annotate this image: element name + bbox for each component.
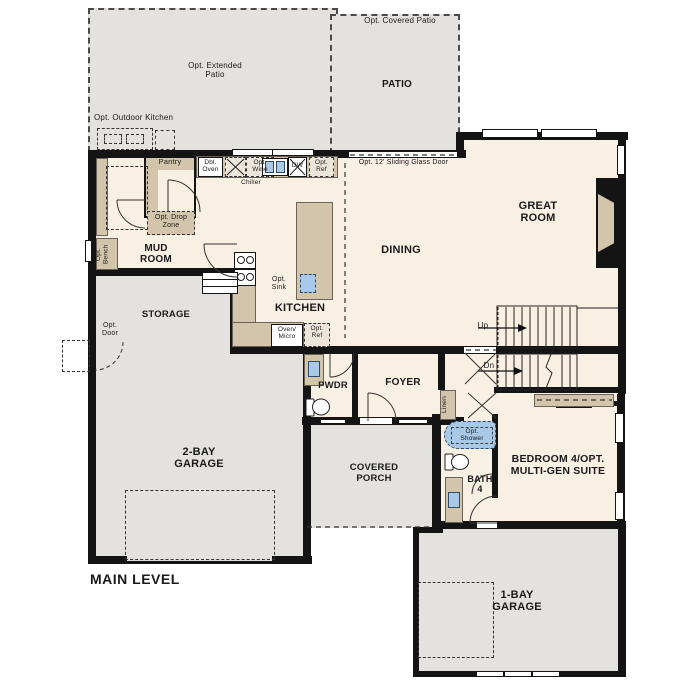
window <box>272 149 314 156</box>
door-opening <box>360 418 392 424</box>
window <box>482 129 538 138</box>
kitchen-label: KITCHEN <box>255 302 345 314</box>
window <box>541 129 597 138</box>
pantry-floor <box>158 170 194 216</box>
dn-label: Dn <box>477 362 501 371</box>
door-opening <box>477 522 497 528</box>
window <box>615 492 624 520</box>
pantry-label: Pantry <box>146 158 194 166</box>
dbl-oven-label: Dbl. Oven <box>198 159 223 174</box>
bedroom-closet <box>534 394 614 407</box>
opt-door-label: Opt. Door <box>92 322 128 338</box>
garage-door-recess <box>125 490 275 560</box>
wall <box>230 346 622 354</box>
dining-label: DINING <box>356 244 446 256</box>
covered-porch-label: COVERED PORCH <box>329 463 419 484</box>
garage1-door <box>504 671 532 677</box>
wall <box>494 387 622 393</box>
opt-cooktop-box <box>225 157 246 177</box>
opt-shower-label: Opt. Shower <box>451 427 493 444</box>
garage-1bay-label: 1-BAY GARAGE <box>462 589 572 614</box>
cooktop-burners <box>234 252 256 269</box>
bench-label: Opt. Bench <box>95 237 117 271</box>
outdoor-kitchen-label: Opt. Outdoor Kitchen <box>94 114 210 123</box>
sink-basin <box>276 161 285 173</box>
sliding-door-label: Opt. 12' Sliding Glass Door <box>346 159 461 167</box>
great-room-label: GREAT ROOM <box>490 200 586 225</box>
main-level-title: MAIN LEVEL <box>90 572 260 588</box>
dw-label: DW <box>288 162 307 169</box>
bedroom-4-label: BEDROOM 4/OPT. MULTI-GEN SUITE <box>496 454 620 478</box>
mud-room-label: MUD ROOM <box>116 243 196 265</box>
garage1-door <box>532 671 560 677</box>
outdoor-kitchen-box <box>155 130 175 150</box>
covered-patio-label: Opt. Covered Patio <box>340 17 460 26</box>
fireplace-insert <box>598 194 614 252</box>
pwdr-label: PWDR <box>310 381 356 392</box>
pwdr-sink <box>308 361 320 377</box>
window <box>617 145 625 175</box>
island-sink <box>300 274 316 293</box>
storage-label: STORAGE <box>121 310 211 321</box>
mud-closet-shelf <box>106 166 148 230</box>
garage1-door <box>476 671 504 677</box>
garage-2bay-label: 2-BAY GARAGE <box>139 446 259 471</box>
oven-micro-label: Oven/ Micro <box>271 326 303 341</box>
up-label: Up <box>471 322 495 331</box>
window <box>615 413 624 443</box>
opt-sink-label: Opt. Sink <box>262 276 296 292</box>
chiller-label: Chiller <box>226 179 276 186</box>
bath-sink <box>448 492 460 508</box>
outdoor-kitchen-box <box>126 134 144 144</box>
door-opening <box>464 347 496 353</box>
wine-label: Opt. Wine <box>246 159 274 174</box>
floor-plan: Opt. Extended Patio Opt. Outdoor Kitchen… <box>0 0 687 687</box>
window <box>232 149 273 156</box>
window <box>85 240 92 262</box>
wall <box>432 414 441 528</box>
ref-kitchen-label: Opt. Ref <box>304 325 330 340</box>
patio-label: PATIO <box>357 79 437 90</box>
wall <box>618 527 626 677</box>
window <box>320 419 346 424</box>
linen-label: Linen <box>441 389 456 421</box>
wall <box>438 346 445 390</box>
ref-top-label: Opt. Ref <box>309 159 334 174</box>
bath-4-label: BATH 4 <box>463 474 497 494</box>
foyer-label: FOYER <box>368 377 438 388</box>
outdoor-kitchen-box <box>104 134 122 144</box>
window <box>398 419 428 424</box>
steps <box>202 286 238 294</box>
garage-door-line <box>127 561 272 563</box>
opt-door-outline <box>62 340 90 372</box>
extended-patio-label: Opt. Extended Patio <box>150 62 280 80</box>
drop-zone-label: Opt. Drop Zone <box>146 214 196 230</box>
sliding-glass-door <box>348 151 458 158</box>
